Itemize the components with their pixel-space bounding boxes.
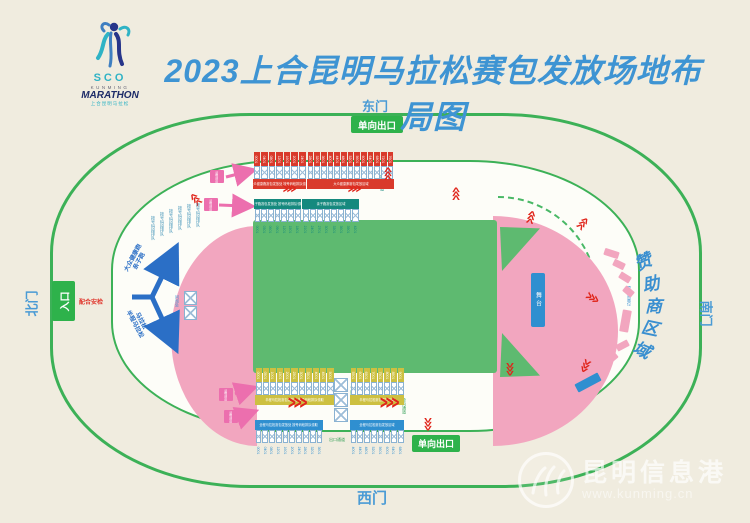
number-range-footer-label: 2401 — [311, 225, 315, 233]
number-range-header: 8501 — [391, 368, 397, 382]
pickup-lane-tag-label: 领物通道 — [215, 171, 219, 182]
pickup-desk — [361, 166, 367, 179]
desk-row — [255, 430, 323, 443]
flow-chevron-icon: >>> — [383, 169, 397, 181]
exit-badge-bottom: 单向出口 — [412, 435, 460, 452]
runner-figure-icon — [78, 18, 142, 72]
number-range-footer-label: 0601 — [269, 225, 273, 233]
number-range-header: 7601 — [388, 152, 394, 166]
pickup-desk — [284, 166, 291, 179]
pickup-desk — [334, 166, 340, 179]
number-range-header: 4501 — [320, 368, 326, 382]
pickup-lane-tag-label: 领物通道 — [209, 199, 213, 210]
number-range-header: 6801 — [374, 152, 380, 166]
pickup-desk — [331, 209, 337, 222]
number-range-header: 3201 — [314, 152, 320, 166]
number-range-footer-label: 0001 — [256, 446, 260, 454]
number-range-footer: 4401 — [357, 443, 363, 457]
number-range-footer: 3601 — [317, 443, 323, 457]
number-range-header: 7501 — [378, 368, 384, 382]
pickup-desk — [310, 209, 316, 222]
pickup-desk — [256, 430, 262, 443]
number-range-footer-label: 6401 — [392, 446, 396, 454]
pickup-arrows — [219, 172, 248, 417]
number-range-footer: 2801 — [303, 443, 309, 457]
table-group-teal-2: 亲子跑赛包发放区域2101240127013001330136013901420… — [302, 199, 359, 236]
number-range-footer: 3201 — [310, 443, 316, 457]
pickup-desk — [262, 430, 268, 443]
number-range-header-label: 9001 — [399, 371, 403, 379]
pickup-desk — [398, 430, 404, 443]
table-group-blue-2: 全程马拉松赛包发放区域40014401480152015601600164016… — [350, 420, 404, 457]
pickup-lane-tag-label: 领物通道 — [229, 411, 233, 422]
pickup-desk — [321, 166, 327, 179]
number-range-header: 8001 — [384, 368, 390, 382]
queue-guide-label: 按号码段排队 — [159, 212, 165, 236]
pickup-lane-tag-label: 领物通道 — [224, 389, 228, 400]
table-banner-label: 亲子跑赛包发放处 按号码段排队领取 — [254, 202, 301, 207]
number-range-footer: 0801 — [269, 443, 275, 457]
number-range-header-label: 6001 — [362, 155, 366, 163]
number-range-header-label: 6001 — [358, 371, 362, 379]
number-range-header: 1601 — [284, 152, 291, 166]
table-group-red-1: 0001040108011201160120012401大众健康跑赛包发放处 按… — [253, 152, 306, 189]
number-range-header: 2501 — [291, 368, 297, 382]
number-range-header: 2001 — [291, 152, 298, 166]
number-range-footer-label: 2001 — [290, 446, 294, 454]
flow-chevron-icon: >>> — [419, 418, 433, 430]
pickup-lane-tag: 领物通道 — [219, 388, 233, 401]
table-banner-label: 亲子跑赛包发放区域 — [316, 202, 345, 207]
number-range-header-label: 3601 — [322, 155, 326, 163]
number-range-footer: 6801 — [398, 443, 404, 457]
number-range-row: 2801320136014001440148015201560160016401… — [307, 152, 394, 166]
entrance-badge: 入口 — [52, 281, 75, 321]
number-range-footer-label: 0801 — [270, 446, 274, 454]
pickup-desk — [288, 209, 294, 222]
number-range-footer-label: 3901 — [346, 225, 350, 233]
number-range-footer-label: 1501 — [289, 225, 293, 233]
number-range-footer-label: 4801 — [365, 446, 369, 454]
info-desk-label: 问询处 — [174, 295, 180, 307]
pickup-desk — [303, 209, 309, 222]
number-range-footer: 3901 — [345, 222, 351, 236]
number-range-header-label: 0001 — [255, 155, 259, 163]
gate-north: 北门 — [22, 290, 41, 316]
pickup-desk — [275, 209, 281, 222]
number-range-footer-label: 0901 — [275, 225, 279, 233]
number-range-footer-label: 3201 — [311, 446, 315, 454]
table-banner-label: 全程马拉松赛包发放处 按号码段排队领取 — [260, 423, 319, 428]
number-range-header: 7201 — [381, 152, 387, 166]
number-range-header: 4401 — [334, 152, 340, 166]
number-range-header-label: 4801 — [342, 155, 346, 163]
number-range-header-label: 5601 — [355, 155, 359, 163]
number-range-footer-label: 0301 — [262, 225, 266, 233]
number-range-row: 0001050110011501200125013001350140014501… — [255, 368, 334, 382]
number-range-header: 0801 — [269, 152, 276, 166]
number-range-header: 9001 — [398, 368, 404, 382]
number-range-header-label: 1001 — [271, 371, 275, 379]
pickup-desk — [308, 166, 314, 179]
number-range-footer-label: 3001 — [325, 225, 329, 233]
pickup-lane-tag: 领物通道 — [204, 198, 218, 211]
number-range-header-label: 4001 — [328, 155, 332, 163]
number-range-header-label: 8001 — [385, 371, 389, 379]
number-range-header: 6001 — [357, 368, 363, 382]
number-range-header: 6501 — [364, 368, 370, 382]
flow-chevron-icon: >>> — [451, 189, 465, 201]
number-range-header-label: 8501 — [392, 371, 396, 379]
number-range-footer: 0301 — [261, 222, 267, 236]
number-range-footer-label: 1801 — [296, 225, 300, 233]
watermark-url: www.kunming.cn — [582, 486, 727, 501]
number-range-footer-label: 3301 — [332, 225, 336, 233]
number-range-footer: 1801 — [295, 222, 301, 236]
pickup-lane-tag: 领物通道 — [224, 410, 238, 423]
pickup-desk — [348, 166, 354, 179]
gate-west: 西门 — [357, 487, 387, 508]
number-range-footer-label: 2701 — [318, 225, 322, 233]
info-desk — [184, 306, 197, 320]
pickup-desk — [351, 430, 357, 443]
number-range-header-label: 0001 — [256, 371, 260, 379]
number-range-header-label: 0801 — [270, 155, 274, 163]
pickup-desk — [296, 430, 302, 443]
number-range-header: 4001 — [328, 152, 334, 166]
number-range-footer-label: 0001 — [255, 225, 259, 233]
number-range-row: 0001040108011201160120012401 — [253, 152, 306, 166]
number-range-header-label: 0401 — [262, 155, 266, 163]
pickup-desk — [378, 430, 384, 443]
number-range-footer: 6401 — [391, 443, 397, 457]
pickup-desk — [291, 166, 298, 179]
pickup-desk — [289, 430, 295, 443]
number-range-header: 2401 — [299, 152, 306, 166]
number-range-footer-label: 5201 — [372, 446, 376, 454]
number-range-header-label: 6501 — [365, 371, 369, 379]
number-range-header-label: 4001 — [314, 371, 318, 379]
number-range-footer-label: 5601 — [378, 446, 382, 454]
pickup-desk — [254, 166, 261, 179]
pickup-desk — [269, 430, 275, 443]
number-range-footer-label: 6001 — [385, 446, 389, 454]
number-range-header-label: 1501 — [278, 371, 282, 379]
venue-layout-diagram: 舞台 大众健康跑 亲子跑 马拉松 半程马拉松 排队通道 — [0, 0, 750, 523]
number-range-footer-label: 2401 — [297, 446, 301, 454]
number-range-header: 4801 — [341, 152, 347, 166]
table-banner: 亲子跑赛包发放处 按号码段排队领取 — [254, 199, 301, 209]
table-banner: 亲子跑赛包发放区域 — [302, 199, 359, 209]
pickup-desk — [261, 209, 267, 222]
logo-cn-name: 上合昆明马拉松 — [77, 101, 143, 107]
number-range-footer: 0901 — [275, 222, 281, 236]
table-banner: 全程马拉松赛包发放区域 — [350, 420, 404, 430]
exit-badge-bottom-label: 单向出口 — [418, 437, 454, 450]
pickup-desk — [261, 166, 268, 179]
number-range-footer-label: 1201 — [282, 225, 286, 233]
pickup-desk — [351, 382, 357, 395]
pickup-desk — [341, 166, 347, 179]
gate-south: 南门 — [698, 300, 717, 326]
pickup-desk — [306, 382, 312, 395]
number-range-footer: 2001 — [289, 443, 295, 457]
pickup-desk — [391, 430, 397, 443]
pickup-desk — [268, 209, 274, 222]
number-range-header: 0501 — [263, 368, 269, 382]
pickup-desk — [313, 382, 319, 395]
pickup-desk — [338, 209, 344, 222]
pickup-desk — [384, 430, 390, 443]
pickup-desk — [283, 430, 289, 443]
pickup-desk — [276, 430, 282, 443]
number-range-header-label: 2801 — [308, 155, 312, 163]
number-range-header: 5601 — [354, 152, 360, 166]
pickup-desk — [364, 382, 370, 395]
pickup-desk — [374, 166, 380, 179]
number-range-header: 1001 — [270, 368, 276, 382]
corridor-desk — [334, 378, 348, 392]
number-range-footer-label: 2801 — [304, 446, 308, 454]
corridor-desk — [334, 393, 348, 407]
number-range-header: 1501 — [277, 368, 283, 382]
number-range-footer: 3001 — [324, 222, 330, 236]
pickup-desk — [368, 166, 374, 179]
table-group-teal-1: 亲子跑赛包发放处 按号码段排队领取00010301060109011201150… — [254, 199, 301, 236]
pickup-desk — [276, 166, 283, 179]
event-logo: SCO KUNMING MARATHON 上合昆明马拉松 — [77, 18, 143, 107]
number-range-header: 5501 — [351, 368, 357, 382]
number-range-footer-label: 3601 — [339, 225, 343, 233]
table-group-blue-1: 全程马拉松赛包发放处 按号码段排队领取000104010801120116012… — [255, 420, 323, 457]
number-range-header-label: 5201 — [348, 155, 352, 163]
desk-row — [302, 209, 359, 222]
number-range-footer: 5201 — [371, 443, 377, 457]
desk-row — [350, 430, 404, 443]
corridor-desk — [334, 408, 348, 422]
number-range-footer-label: 1601 — [283, 446, 287, 454]
number-range-footer: 0601 — [268, 222, 274, 236]
logo-sco: SCO — [77, 72, 143, 84]
pickup-desk — [303, 430, 309, 443]
number-range-footer-label: 4001 — [351, 446, 355, 454]
pickup-desk — [310, 430, 316, 443]
table-banner: 全程马拉松赛包发放处 按号码段排队领取 — [255, 420, 323, 430]
pickup-desk — [281, 209, 287, 222]
number-range-footer: 2701 — [317, 222, 323, 236]
number-range-header-label: 7001 — [372, 371, 376, 379]
number-range-header-label: 5501 — [351, 371, 355, 379]
pickup-desk — [354, 166, 360, 179]
number-range-header: 3001 — [299, 368, 305, 382]
number-range-footer-label: 3601 — [317, 446, 321, 454]
number-range-footer-label: 2101 — [303, 225, 307, 233]
number-range-header: 2001 — [284, 368, 290, 382]
number-range-footer: 1201 — [276, 443, 282, 457]
entrance-badge-label: 入口 — [56, 291, 71, 311]
pickup-desk — [345, 209, 351, 222]
number-range-footer: 4201 — [352, 222, 358, 236]
pickup-desk — [255, 209, 261, 222]
number-range-footer-label: 0401 — [263, 446, 267, 454]
number-range-header: 0401 — [261, 152, 268, 166]
desk-row — [253, 166, 306, 179]
pickup-desk — [364, 430, 370, 443]
number-range-header: 4001 — [313, 368, 319, 382]
number-range-header-label: 1201 — [277, 155, 281, 163]
number-range-header-label: 3001 — [300, 371, 304, 379]
pickup-desk — [299, 166, 306, 179]
number-range-header-label: 6801 — [375, 155, 379, 163]
table-banner-label: 全程马拉松赛包发放区域 — [359, 423, 394, 428]
number-range-header-label: 7501 — [378, 371, 382, 379]
flow-chevron-icon: >>> — [288, 393, 305, 414]
number-range-header: 2801 — [308, 152, 314, 166]
number-range-row: 21012401270130013301360139014201 — [302, 222, 359, 236]
number-range-header: 7001 — [371, 368, 377, 382]
number-range-header: 3601 — [321, 152, 327, 166]
number-range-header-label: 3201 — [315, 155, 319, 163]
number-range-header-label: 0501 — [264, 371, 268, 379]
number-range-footer: 0001 — [255, 222, 261, 236]
number-range-footer: 4801 — [364, 443, 370, 457]
number-range-footer: 3601 — [338, 222, 344, 236]
number-range-header-label: 7201 — [382, 155, 386, 163]
number-range-footer: 2101 — [303, 222, 309, 236]
pickup-desk — [277, 382, 283, 395]
info-desk — [184, 291, 197, 305]
pickup-desk — [270, 382, 276, 395]
pickup-desk — [328, 166, 334, 179]
watermark-text: 昆明信息港 www.kunming.cn — [582, 460, 727, 501]
queue-guide-label: 按号码段排队 — [177, 206, 183, 230]
number-range-header: 5201 — [348, 152, 354, 166]
number-range-header: 0001 — [256, 368, 262, 382]
number-range-row: 0001030106010901120115011801 — [254, 222, 301, 236]
pickup-desk — [256, 382, 262, 395]
queue-guide-label: 按号码段排队 — [150, 216, 156, 240]
security-note: 配合安检 — [79, 297, 103, 306]
number-range-footer: 2401 — [296, 443, 302, 457]
logo-marathon: MARATHON — [77, 90, 143, 101]
pickup-desk — [317, 430, 323, 443]
watermark-site-name: 昆明信息港 — [582, 460, 727, 486]
number-range-header-label: 3501 — [307, 371, 311, 379]
pickup-desk — [295, 209, 301, 222]
queue-guide-label: 按号码段排队 — [168, 209, 174, 233]
number-range-footer-label: 6801 — [399, 446, 403, 454]
number-range-header: 0001 — [254, 152, 261, 166]
number-range-footer: 1201 — [281, 222, 287, 236]
pickup-desk — [269, 166, 276, 179]
number-range-footer: 5601 — [378, 443, 384, 457]
number-range-header-label: 5001 — [328, 371, 332, 379]
number-range-header-label: 7601 — [388, 155, 392, 163]
number-range-footer: 0401 — [262, 443, 268, 457]
exit-lane-label: 出口通道 — [329, 437, 345, 443]
table-banner-label: 大众健康跑赛包发放处 按号码段排队领取 — [253, 182, 306, 187]
number-range-footer: 1501 — [288, 222, 294, 236]
number-range-header-label: 2401 — [300, 155, 304, 163]
flow-chevron-icon: >>> — [380, 393, 397, 414]
page-title: 2023上合昆明马拉松赛包发放场地布局图 — [150, 46, 716, 138]
number-range-footer-label: 4401 — [358, 446, 362, 454]
pickup-desk — [398, 382, 404, 395]
number-range-footer: 1601 — [283, 443, 289, 457]
number-range-row: 55016001650170017501800185019001 — [350, 368, 404, 382]
number-range-header: 1201 — [276, 152, 283, 166]
pickup-desk — [317, 209, 323, 222]
number-range-header-label: 2001 — [285, 371, 289, 379]
pickup-desk — [357, 382, 363, 395]
flow-chevron-icon: >>> — [283, 183, 295, 197]
watermark: 昆明信息港 www.kunming.cn — [518, 452, 727, 508]
pickup-desk — [263, 382, 269, 395]
number-range-footer: 3301 — [331, 222, 337, 236]
number-range-header-label: 4401 — [335, 155, 339, 163]
pickup-desk — [371, 430, 377, 443]
pickup-desk — [314, 166, 320, 179]
number-range-footer-label: 4201 — [353, 225, 357, 233]
number-range-header-label: 1601 — [285, 155, 289, 163]
number-range-footer: 2401 — [310, 222, 316, 236]
pickup-desk — [371, 382, 377, 395]
number-range-header: 3501 — [306, 368, 312, 382]
number-range-header: 6401 — [368, 152, 374, 166]
number-range-footer: 0001 — [256, 443, 262, 457]
flow-chevron-icon: >>> — [348, 183, 360, 197]
number-range-header-label: 4501 — [321, 371, 325, 379]
flow-chevron-icon: >>> — [501, 363, 515, 375]
pickup-lane-tag: 领物通道 — [210, 170, 224, 183]
number-range-footer: 4001 — [351, 443, 357, 457]
pickup-desk — [324, 209, 330, 222]
number-range-header-label: 2501 — [292, 371, 296, 379]
queue-guide-label: 按号码段排队 — [186, 204, 192, 228]
number-range-footer: 6001 — [384, 443, 390, 457]
number-range-header-label: 2001 — [293, 155, 297, 163]
pickup-desk — [320, 382, 326, 395]
queue-guide-label: 按号码段排队 — [195, 203, 201, 227]
number-range-row: 40014401480152015601600164016801 — [350, 443, 404, 457]
number-range-header: 6001 — [361, 152, 367, 166]
number-range-footer-label: 1201 — [277, 446, 281, 454]
watermark-logo-icon — [518, 452, 574, 508]
table-banner: 大众健康跑赛包发放处 按号码段排队领取 — [253, 179, 306, 189]
desk-row — [254, 209, 301, 222]
number-range-row: 0001040108011201160120012401280132013601 — [255, 443, 323, 457]
pickup-desk — [357, 430, 363, 443]
pickup-desk — [352, 209, 358, 222]
number-range-header-label: 6401 — [368, 155, 372, 163]
